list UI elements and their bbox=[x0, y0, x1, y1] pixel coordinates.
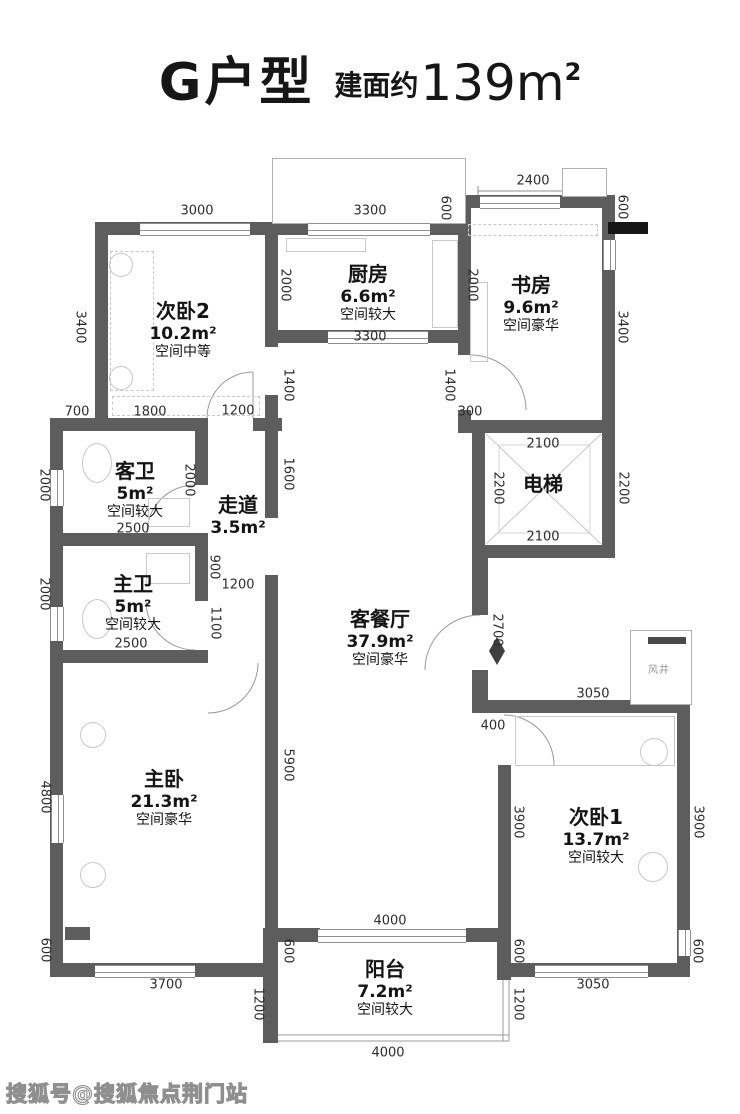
room-label-kitchen: 厨房6.6m²空间较大 bbox=[340, 263, 396, 323]
dimension-label: 3050 bbox=[576, 978, 609, 993]
room-grade: 空间较大 bbox=[340, 307, 396, 324]
furniture-outline bbox=[286, 238, 366, 252]
room-name: 电梯 bbox=[523, 473, 563, 497]
room-area: 6.6m² bbox=[340, 287, 396, 307]
dimension-label: 4800 bbox=[38, 780, 53, 813]
dimension-label: 700 bbox=[65, 405, 90, 420]
window bbox=[318, 929, 466, 943]
dimension-label: 400 bbox=[481, 719, 506, 734]
window bbox=[308, 223, 430, 236]
furniture-outline bbox=[80, 722, 106, 748]
room-label-guest-bathroom: 客卫5m²空间较大 bbox=[107, 460, 163, 520]
window bbox=[603, 240, 616, 270]
wall-marker-black bbox=[608, 222, 648, 234]
room-label-study: 书房9.6m²空间豪华 bbox=[503, 274, 559, 334]
dimension-label: 3400 bbox=[615, 310, 630, 343]
dimension-label: 2200 bbox=[491, 471, 506, 504]
dimension-label: 1100 bbox=[208, 606, 223, 639]
shaft-grille bbox=[648, 637, 686, 644]
room-grade: 空间豪华 bbox=[346, 652, 413, 669]
dimension-label: 1800 bbox=[133, 405, 166, 420]
room-name: 次卧1 bbox=[562, 806, 629, 830]
dimension-label: 3400 bbox=[73, 310, 88, 343]
dimension-label: 600 bbox=[615, 195, 630, 220]
dimension-label: 600 bbox=[281, 939, 296, 964]
furniture-outline bbox=[468, 224, 598, 236]
dimension-label: 2000 bbox=[37, 577, 52, 610]
wall-segment bbox=[253, 418, 282, 431]
room-grade: 空间较大 bbox=[107, 504, 163, 521]
furniture-outline bbox=[638, 852, 668, 882]
dimension-label: 1200 bbox=[221, 578, 254, 593]
dimension-label: 2000 bbox=[37, 468, 52, 501]
dimension-label: 600 bbox=[38, 938, 53, 963]
dimension-label: 1400 bbox=[281, 368, 296, 401]
room-area: 37.9m² bbox=[346, 632, 413, 652]
wall-segment bbox=[472, 558, 488, 615]
room-area: 3.5m² bbox=[210, 518, 265, 538]
room-name: 阳台 bbox=[357, 958, 413, 982]
room-grade: 空间较大 bbox=[105, 617, 161, 634]
wall-segment bbox=[265, 575, 278, 940]
room-area: 5m² bbox=[107, 484, 163, 504]
wall-segment bbox=[602, 420, 615, 558]
dimension-label: 600 bbox=[511, 939, 526, 964]
master-bedroom-door-arc bbox=[208, 663, 258, 713]
dimension-label: 2500 bbox=[116, 522, 149, 537]
entry-door-arc bbox=[425, 615, 480, 670]
furniture-outline bbox=[432, 240, 458, 328]
room-label-balcony: 阳台7.2m²空间较大 bbox=[357, 958, 413, 1018]
watermark: 搜狐号@搜狐焦点荆门站 bbox=[6, 1078, 248, 1108]
dimension-label: 1600 bbox=[281, 457, 296, 490]
room-label-master-bedroom: 主卧21.3m²空间豪华 bbox=[130, 768, 197, 828]
room-label-air-shaft: 风井 bbox=[648, 665, 670, 677]
dimension-label: 600 bbox=[438, 196, 453, 221]
dimension-label: 1200 bbox=[251, 987, 266, 1020]
wall-segment bbox=[263, 928, 278, 1043]
room-grade: 空间豪华 bbox=[130, 812, 197, 829]
room-grade: 空间中等 bbox=[149, 344, 216, 361]
window bbox=[50, 470, 64, 506]
room-name: 次卧2 bbox=[149, 300, 216, 324]
dimension-label: 900 bbox=[207, 555, 222, 580]
room-area: 10.2m² bbox=[149, 324, 216, 344]
furniture-outline bbox=[109, 366, 133, 390]
dimension-label: 2200 bbox=[616, 471, 631, 504]
wall-segment bbox=[458, 420, 608, 433]
room-area: 13.7m² bbox=[562, 830, 629, 850]
room-name: 风井 bbox=[648, 665, 670, 677]
room-name: 厨房 bbox=[340, 263, 396, 287]
dimension-label: 1200 bbox=[511, 987, 526, 1020]
dimension-label: 4000 bbox=[373, 914, 406, 929]
room-label-master-bathroom: 主卫5m²空间较大 bbox=[105, 573, 161, 633]
wall-segment bbox=[485, 545, 602, 558]
floorplan-canvas: 次卧210.2m²空间中等厨房6.6m²空间较大书房9.6m²空间豪华客卫5m²… bbox=[0, 0, 740, 1114]
furniture-outline bbox=[80, 862, 106, 888]
dimension-label: 3300 bbox=[353, 330, 386, 345]
wall-segment bbox=[265, 431, 278, 518]
room-grade: 空间较大 bbox=[357, 1002, 413, 1019]
furniture-outline bbox=[640, 738, 668, 766]
dimension-label: 3050 bbox=[576, 687, 609, 702]
window bbox=[51, 795, 64, 843]
dimension-label: 5900 bbox=[281, 748, 296, 781]
dimension-label: 1400 bbox=[442, 368, 457, 401]
wall-segment bbox=[65, 927, 90, 940]
dimension-label: 2000 bbox=[465, 268, 480, 301]
room-label-living-dining: 客餐厅37.9m²空间豪华 bbox=[346, 608, 413, 668]
room-label-elevator: 电梯 bbox=[523, 473, 563, 497]
dimension-label: 2400 bbox=[516, 174, 549, 189]
wall-segment bbox=[95, 222, 108, 431]
wall-segment bbox=[472, 670, 488, 713]
thin-outline-box bbox=[562, 168, 607, 197]
dimension-label: 4000 bbox=[371, 1046, 404, 1061]
room-grade: 空间豪华 bbox=[503, 318, 559, 335]
room-name: 客餐厅 bbox=[346, 608, 413, 632]
study-door-arc bbox=[471, 355, 526, 410]
wall-segment bbox=[472, 433, 485, 558]
wall-segment bbox=[195, 418, 208, 485]
room-label-corridor: 走道3.5m² bbox=[210, 494, 265, 538]
window bbox=[480, 196, 560, 209]
room-name: 主卫 bbox=[105, 573, 161, 597]
room-grade: 空间较大 bbox=[562, 850, 629, 867]
dimension-label: 3900 bbox=[511, 805, 526, 838]
dimension-label: 2100 bbox=[526, 437, 559, 452]
dimension-label: 3300 bbox=[353, 204, 386, 219]
dimension-label: 3900 bbox=[691, 805, 706, 838]
window bbox=[95, 965, 195, 978]
wall-segment bbox=[63, 650, 208, 663]
dimension-label: 2100 bbox=[526, 530, 559, 545]
dimension-label: 3700 bbox=[149, 978, 182, 993]
wall-segment bbox=[50, 418, 207, 431]
room-area: 5m² bbox=[105, 597, 161, 617]
dimension-label: 600 bbox=[690, 939, 705, 964]
wall-segment bbox=[498, 765, 511, 963]
room-label-bedroom1: 次卧113.7m²空间较大 bbox=[562, 806, 629, 866]
room-name: 书房 bbox=[503, 274, 559, 298]
window bbox=[140, 223, 250, 236]
dimension-label: 1200 bbox=[221, 404, 254, 419]
room-label-bedroom2: 次卧210.2m²空间中等 bbox=[149, 300, 216, 360]
room-name: 客卫 bbox=[107, 460, 163, 484]
window bbox=[535, 965, 648, 978]
wall-segment bbox=[466, 928, 498, 942]
dimension-label: 2700 bbox=[490, 613, 505, 646]
dimension-label: 2500 bbox=[114, 637, 147, 652]
dimension-label: 2000 bbox=[278, 268, 293, 301]
furniture-outline bbox=[109, 253, 133, 277]
window bbox=[50, 607, 64, 641]
room-area: 21.3m² bbox=[130, 792, 197, 812]
wall-segment bbox=[265, 222, 278, 347]
room-area: 9.6m² bbox=[503, 298, 559, 318]
room-name: 主卧 bbox=[130, 768, 197, 792]
room-name: 走道 bbox=[210, 494, 265, 518]
dimension-label: 300 bbox=[458, 405, 483, 420]
dimension-label: 3000 bbox=[180, 204, 213, 219]
dimension-label: 2000 bbox=[182, 463, 197, 496]
room-area: 7.2m² bbox=[357, 982, 413, 1002]
